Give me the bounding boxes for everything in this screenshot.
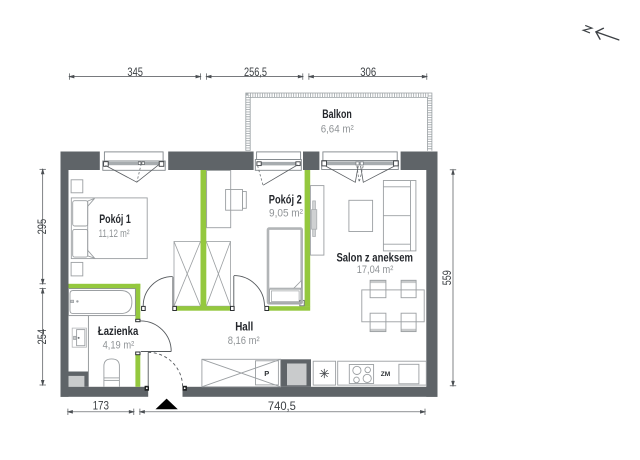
svg-text:306: 306: [360, 67, 376, 79]
svg-text:11,12 m²: 11,12 m²: [99, 228, 130, 240]
svg-text:ZM: ZM: [381, 371, 391, 378]
svg-text:559: 559: [442, 270, 454, 285]
svg-text:740,5: 740,5: [268, 401, 296, 413]
svg-text:173: 173: [93, 401, 109, 413]
svg-text:295: 295: [37, 219, 49, 235]
svg-text:Łazienka: Łazienka: [98, 326, 139, 338]
svg-text:Pokój 1: Pokój 1: [99, 214, 131, 226]
svg-text:9,05 m²: 9,05 m²: [269, 208, 303, 220]
svg-text:4,19 m²: 4,19 m²: [103, 339, 135, 351]
svg-text:8,16 m²: 8,16 m²: [228, 335, 260, 347]
svg-text:256,5: 256,5: [244, 67, 267, 79]
svg-text:Balkon: Balkon: [322, 109, 352, 121]
svg-text:345: 345: [127, 67, 143, 79]
svg-text:Salon z aneksem: Salon z aneksem: [336, 253, 413, 265]
svg-text:Hall: Hall: [235, 322, 253, 334]
svg-text:254: 254: [37, 328, 49, 344]
svg-text:17,04 m²: 17,04 m²: [357, 264, 394, 276]
svg-text:Pokój 2: Pokój 2: [269, 194, 302, 206]
svg-text:P: P: [264, 369, 269, 378]
svg-text:6,64 m²: 6,64 m²: [321, 123, 354, 135]
